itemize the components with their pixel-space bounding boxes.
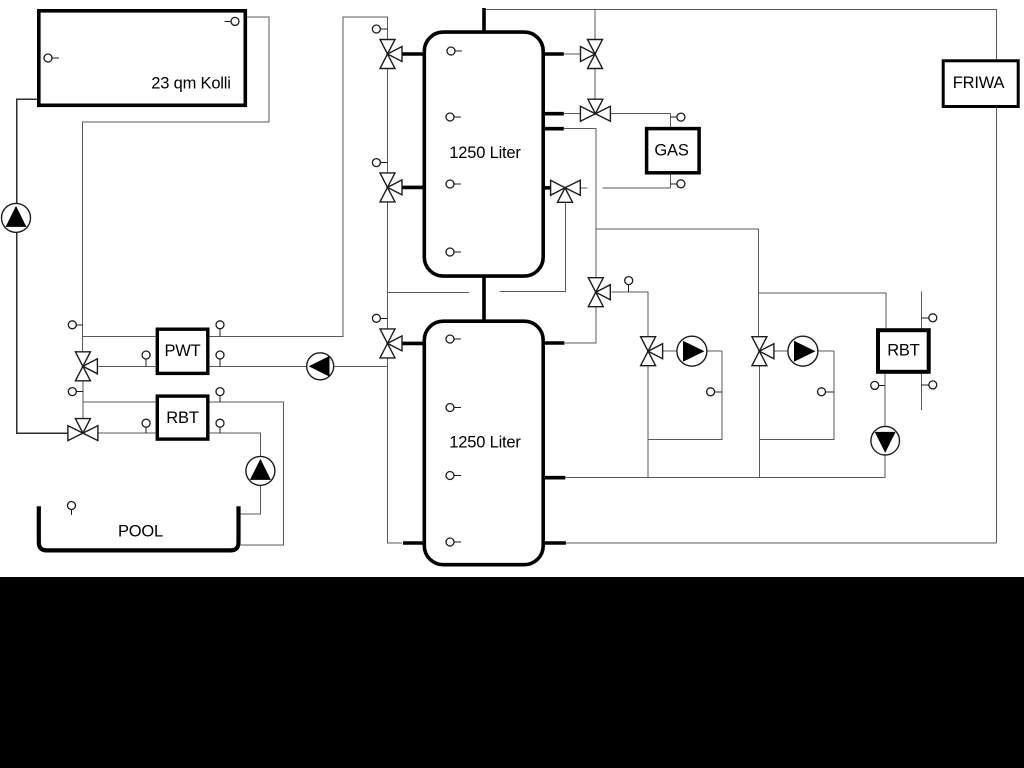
svg-text:23 qm Kolli: 23 qm Kolli	[151, 75, 230, 93]
svg-text:1250 Liter: 1250 Liter	[449, 434, 521, 452]
svg-text:1250 Liter: 1250 Liter	[449, 144, 521, 162]
svg-text:GAS: GAS	[654, 142, 688, 160]
svg-text:RBT: RBT	[166, 409, 199, 427]
svg-text:FRIWA: FRIWA	[953, 74, 1005, 92]
svg-text:RBT: RBT	[887, 342, 920, 360]
svg-text:POOL: POOL	[118, 523, 163, 541]
svg-text:PWT: PWT	[164, 342, 200, 360]
